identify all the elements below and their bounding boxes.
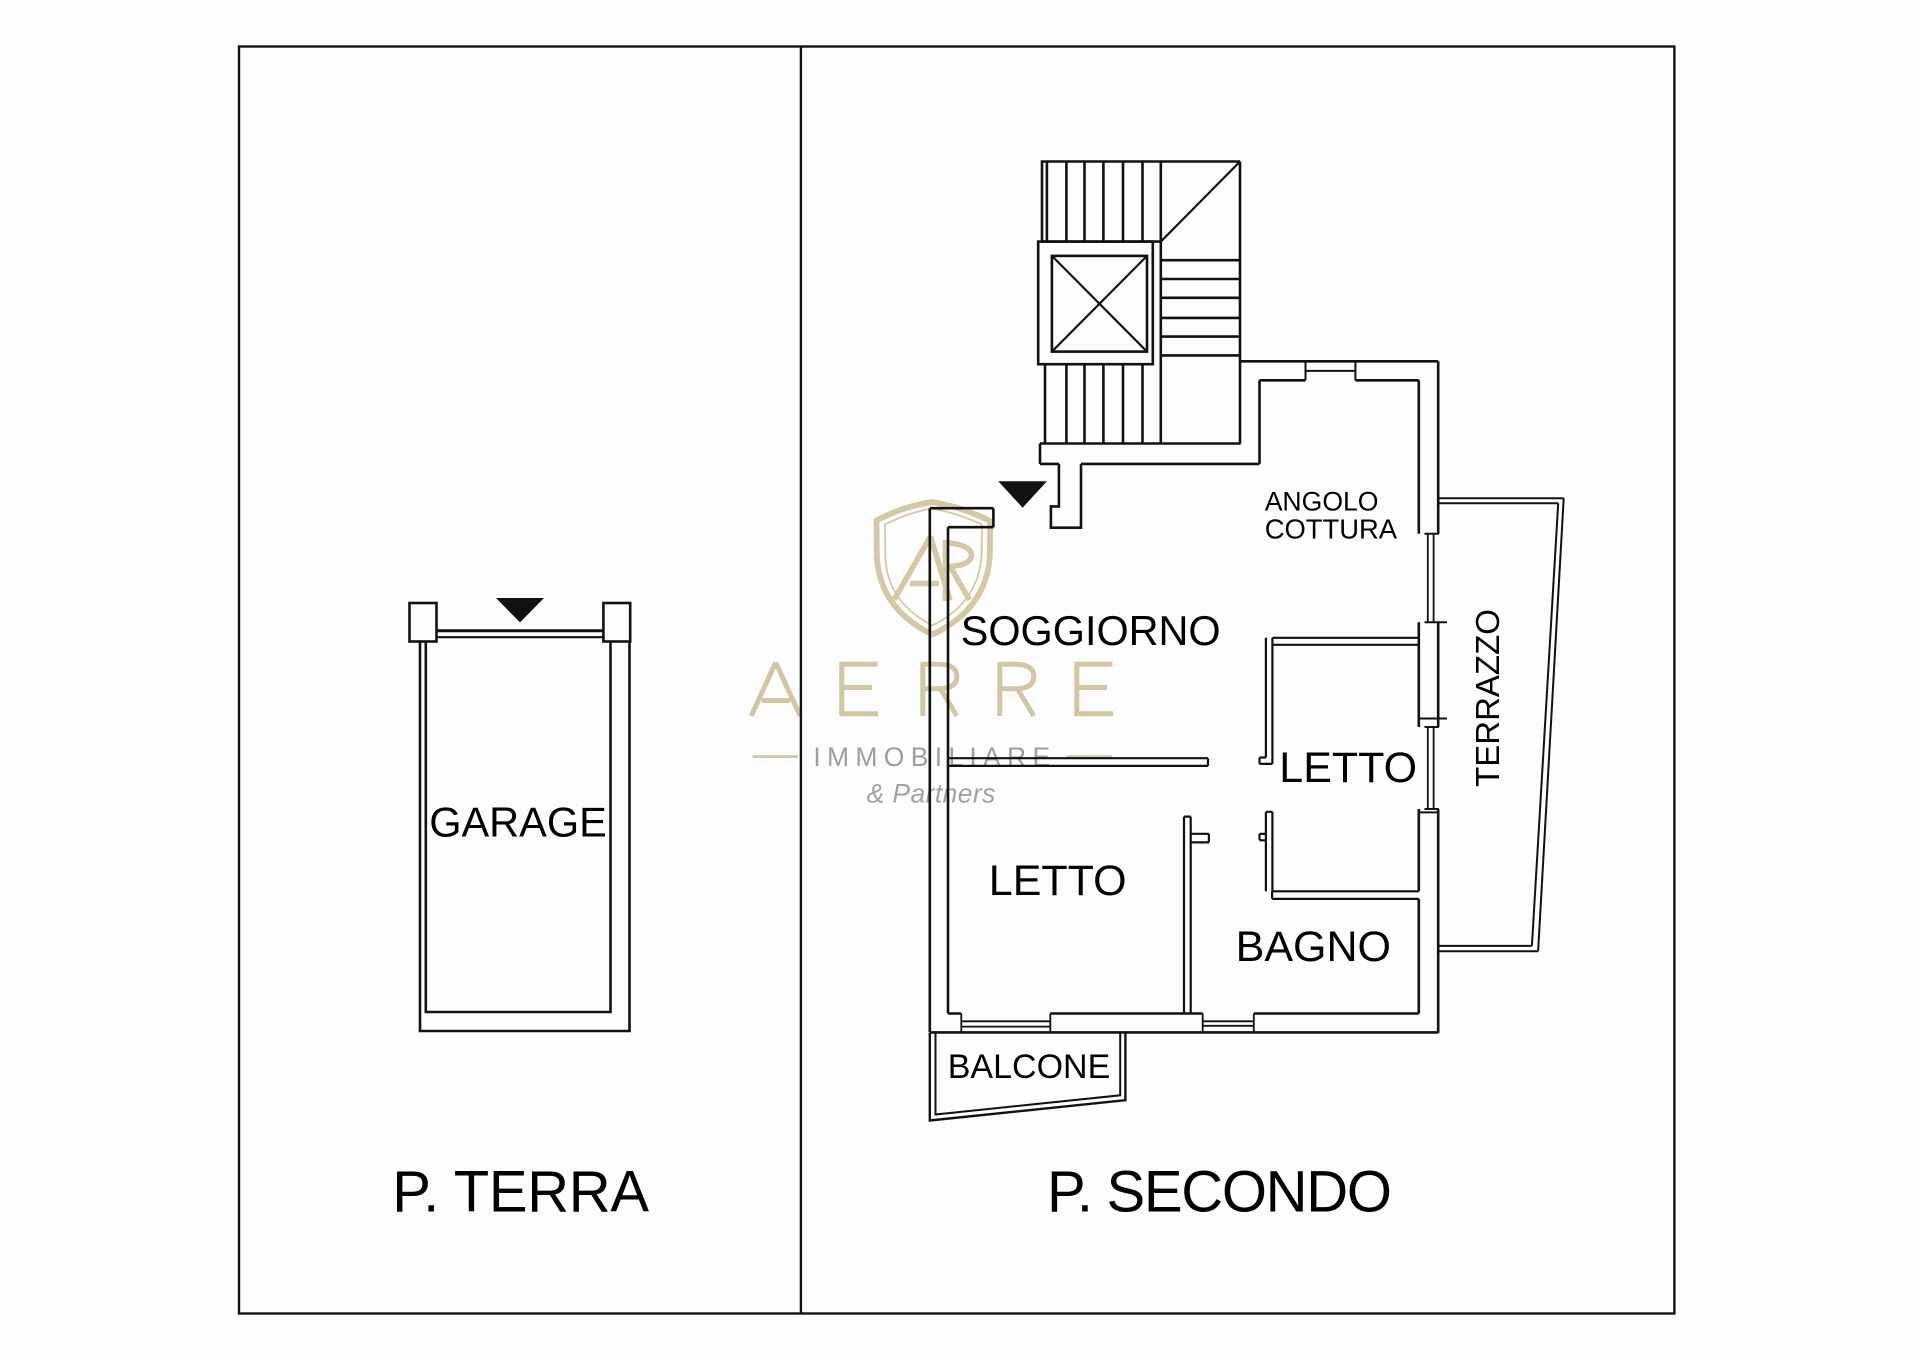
svg-text:LETTO: LETTO — [1279, 744, 1417, 792]
svg-text:BAGNO: BAGNO — [1236, 923, 1391, 971]
svg-text:ANGOLO: ANGOLO — [1265, 486, 1379, 516]
svg-text:IMMOBILIARE: IMMOBILIARE — [813, 742, 1056, 772]
svg-text:SOGGIORNO: SOGGIORNO — [961, 608, 1221, 654]
svg-text:P. SECONDO: P. SECONDO — [1047, 1160, 1391, 1225]
svg-text:LETTO: LETTO — [989, 857, 1127, 905]
svg-text:& Partners: & Partners — [867, 779, 996, 809]
svg-text:GARAGE: GARAGE — [429, 799, 607, 846]
svg-text:COTTURA: COTTURA — [1265, 513, 1398, 544]
svg-text:P. TERRA: P. TERRA — [392, 1160, 649, 1225]
svg-text:BALCONE: BALCONE — [948, 1048, 1111, 1086]
svg-text:TERRAZZO: TERRAZZO — [1469, 609, 1506, 787]
